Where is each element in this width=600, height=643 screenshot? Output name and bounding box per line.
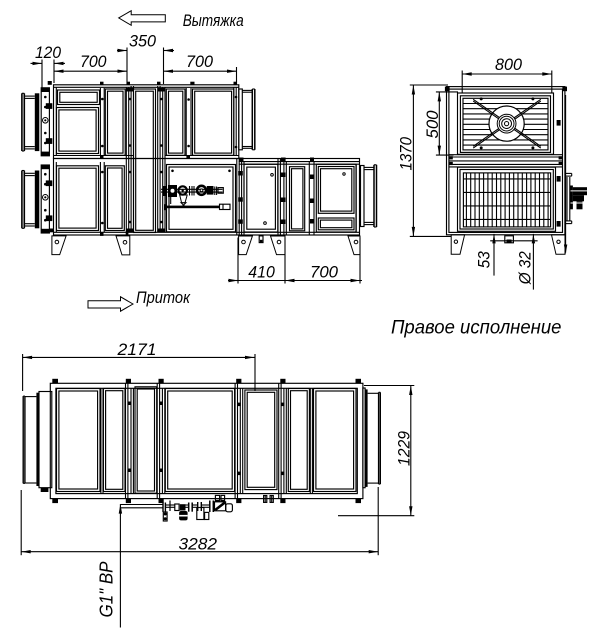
svg-text:Правое исполнение: Правое исполнение [391, 318, 562, 339]
svg-text:120: 120 [35, 44, 62, 62]
svg-text:350: 350 [129, 33, 157, 51]
svg-text:G1" ВР: G1" ВР [97, 562, 117, 618]
svg-text:53: 53 [475, 251, 493, 269]
svg-text:Ø 32: Ø 32 [516, 251, 534, 285]
svg-text:700: 700 [186, 53, 214, 71]
svg-text:800: 800 [495, 56, 523, 74]
svg-text:Вытяжка: Вытяжка [183, 12, 244, 30]
svg-text:2171: 2171 [116, 341, 156, 359]
svg-text:3282: 3282 [179, 536, 218, 554]
svg-text:Приток: Приток [136, 289, 191, 307]
svg-text:700: 700 [310, 264, 339, 282]
svg-text:410: 410 [248, 264, 275, 282]
svg-text:1370: 1370 [397, 136, 415, 170]
svg-text:700: 700 [80, 53, 107, 71]
